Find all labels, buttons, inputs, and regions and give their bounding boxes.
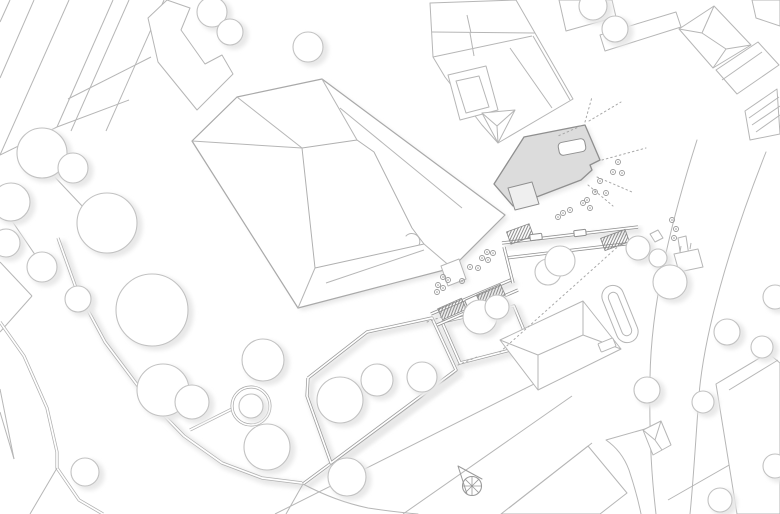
tree <box>714 319 740 345</box>
tree <box>751 336 773 358</box>
plan-detail <box>589 207 591 209</box>
tree <box>317 377 363 423</box>
plan-detail <box>481 257 483 259</box>
plan-detail <box>487 259 489 261</box>
tree <box>244 424 290 470</box>
tree <box>653 265 687 299</box>
plan-detail <box>469 266 471 268</box>
north-arrow <box>463 477 482 496</box>
tree <box>328 458 366 496</box>
plan-detail <box>671 219 673 221</box>
plan-detail <box>557 216 559 218</box>
tree <box>116 274 188 346</box>
tree <box>626 236 650 260</box>
stair-landing <box>574 229 587 236</box>
tree <box>293 32 323 62</box>
plan-detail <box>461 280 463 282</box>
tree <box>77 193 137 253</box>
tree <box>217 19 243 45</box>
plan-detail <box>569 209 571 211</box>
tree <box>58 153 88 183</box>
plan-detail <box>492 252 494 254</box>
plan-detail <box>562 212 564 214</box>
site-plan-canvas <box>0 0 780 514</box>
plan-detail <box>617 161 619 163</box>
tree <box>242 339 284 381</box>
tree <box>692 391 714 413</box>
tree <box>27 252 57 282</box>
plan-detail <box>673 237 675 239</box>
plan-detail <box>621 172 623 174</box>
plan-detail <box>586 199 588 201</box>
plan-detail <box>442 276 444 278</box>
tree <box>175 385 209 419</box>
tree <box>602 16 628 42</box>
plan-detail <box>442 287 444 289</box>
plan-detail <box>447 279 449 281</box>
site-plan-drawing <box>0 0 780 514</box>
tree <box>407 362 437 392</box>
plan-detail <box>605 192 607 194</box>
plan-detail <box>599 180 601 182</box>
plan-detail <box>436 291 438 293</box>
plan-detail <box>675 228 677 230</box>
plan-detail <box>477 267 479 269</box>
plan-detail <box>582 202 584 204</box>
stair-landing <box>530 233 543 240</box>
plan-detail <box>437 284 439 286</box>
plan-detail <box>594 191 596 193</box>
tree <box>361 364 393 396</box>
plan-detail <box>612 171 614 173</box>
tree <box>239 394 263 418</box>
tree <box>634 377 660 403</box>
tree <box>649 249 667 267</box>
plan-detail <box>486 251 488 253</box>
tree <box>65 286 91 312</box>
tree <box>545 246 575 276</box>
tree <box>708 488 732 512</box>
tree <box>485 295 509 319</box>
tree <box>71 458 99 486</box>
